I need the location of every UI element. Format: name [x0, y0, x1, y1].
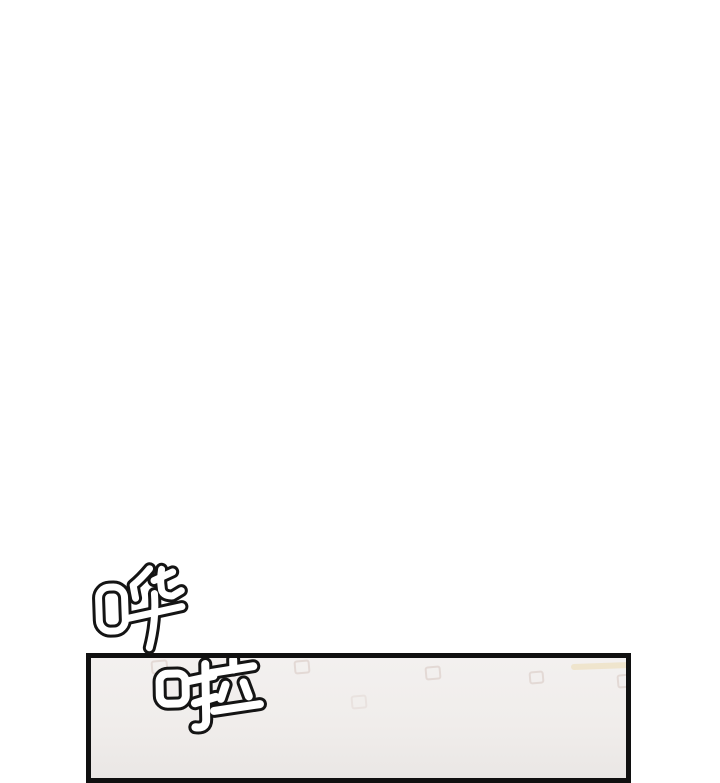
sfx-la: 啦 — [153, 656, 265, 758]
paint-smudge — [571, 662, 631, 670]
comic-page: 哗 啦 — [0, 0, 720, 700]
wallpaper-square — [528, 670, 544, 684]
sfx-la-lettering — [153, 656, 265, 758]
wallpaper-square — [616, 673, 631, 688]
wallpaper-square — [350, 694, 367, 709]
sfx-hua-lettering — [92, 564, 191, 655]
sfx-hua: 哗 — [92, 564, 191, 655]
wallpaper-square — [293, 659, 310, 674]
wallpaper-square — [424, 665, 441, 680]
comic-panel: 啦 — [86, 653, 631, 783]
